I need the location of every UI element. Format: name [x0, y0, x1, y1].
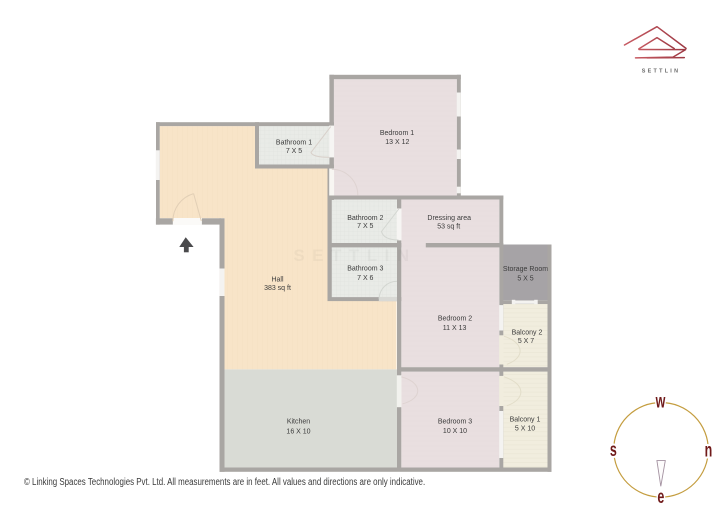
svg-text:5 X 5: 5 X 5 [517, 275, 533, 282]
svg-text:Dressing area: Dressing area [427, 215, 471, 222]
svg-text:Bedroom 2: Bedroom 2 [438, 316, 472, 323]
svg-text:10 X 10: 10 X 10 [443, 428, 467, 435]
svg-text:53 sq ft: 53 sq ft [437, 224, 460, 231]
svg-text:Bedroom 3: Bedroom 3 [438, 419, 472, 426]
svg-text:w: w [655, 391, 666, 412]
svg-text:5 X 10: 5 X 10 [515, 426, 535, 433]
svg-text:Bathroom 3: Bathroom 3 [347, 266, 383, 273]
svg-text:7 X 6: 7 X 6 [357, 275, 373, 282]
svg-text:5 X 7: 5 X 7 [518, 338, 534, 345]
svg-text:SETTLIN: SETTLIN [293, 246, 416, 265]
svg-text:Hall: Hall [271, 277, 284, 284]
svg-text:n: n [705, 440, 713, 461]
svg-text:Bathroom 1: Bathroom 1 [276, 139, 312, 146]
svg-text:Kitchen: Kitchen [287, 419, 310, 426]
svg-text:13 X 12: 13 X 12 [385, 139, 409, 146]
svg-text:Bedroom 1: Bedroom 1 [380, 130, 414, 137]
svg-text:© Linking Spaces Technologies: © Linking Spaces Technologies Pvt. Ltd. … [24, 476, 425, 487]
svg-text:Storage Room: Storage Room [503, 266, 548, 273]
svg-text:7 X 5: 7 X 5 [357, 223, 373, 230]
svg-text:Balcony 2: Balcony 2 [512, 329, 543, 336]
svg-text:7 X 5: 7 X 5 [286, 148, 302, 155]
svg-text:Balcony 1: Balcony 1 [510, 417, 541, 424]
svg-text:SETTLIN: SETTLIN [642, 69, 681, 75]
svg-text:s: s [610, 439, 617, 460]
svg-text:Bathroom 2: Bathroom 2 [347, 215, 383, 222]
svg-text:16 X 10: 16 X 10 [286, 428, 310, 435]
svg-text:383 sq ft: 383 sq ft [264, 285, 291, 292]
svg-text:11 X 13: 11 X 13 [443, 325, 467, 332]
svg-text:e: e [657, 486, 664, 507]
